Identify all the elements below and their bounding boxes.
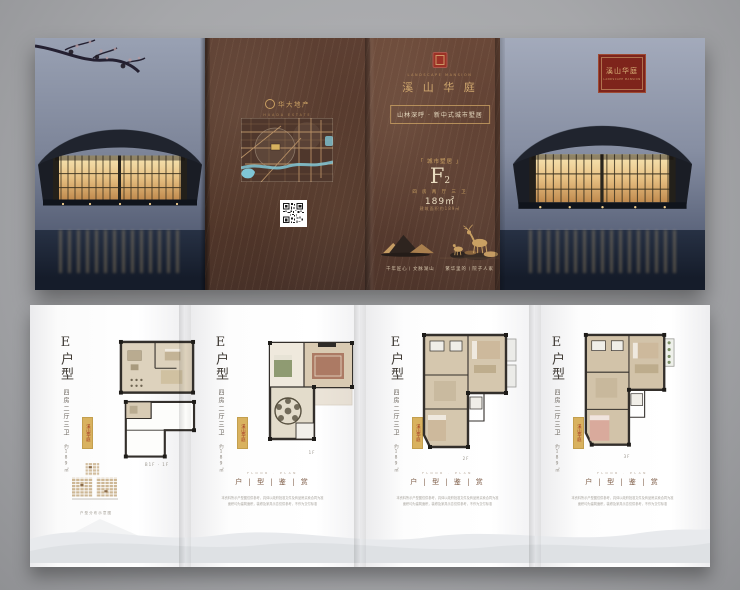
floorplan-brochure-spread: E户型 四房二厅三卫 约189㎡ 溪山华庭	[30, 305, 710, 567]
unit-type-spec: 四房二厅三卫	[61, 389, 70, 437]
unit-type-area: 约189㎡	[393, 444, 399, 473]
brand-name-en: LANDSCAPE MANSION	[380, 73, 500, 77]
unit-type-title: E户型	[547, 335, 566, 382]
unit-type-area: 约189㎡	[218, 444, 224, 473]
floor-plan: B1F · 1F	[116, 339, 198, 467]
brand-name-cn: 溪 山 华 庭	[380, 79, 500, 95]
brand-seal-icon	[433, 52, 448, 68]
qr-code	[280, 200, 307, 227]
tree-branch-silhouette	[35, 38, 205, 102]
section-label: FLOOR · PLAN 户 | 型 | 鉴 | 赏	[543, 471, 703, 487]
cover-panel: LANDSCAPE MANSION 溪 山 华 庭 山林深呼 · 新中式城市墅居…	[370, 38, 500, 290]
floor-label: 3F	[624, 454, 631, 459]
brand-slogan: 山林深呼 · 新中式城市墅居	[390, 105, 490, 124]
location-map	[241, 118, 333, 182]
floor-plan-drawing	[414, 331, 518, 453]
brochure-scene: 华大地产 HUADA ESTATE	[0, 0, 740, 590]
unit-title-block: E户型 四房二厅三卫 约189㎡	[56, 335, 75, 473]
developer-subtitle: HUADA ESTATE	[205, 113, 370, 117]
front-brochure-spread: 华大地产 HUADA ESTATE	[35, 38, 705, 290]
villa-illustration	[500, 104, 705, 235]
cover-content: LANDSCAPE MANSION 溪 山 华 庭 山林深呼 · 新中式城市墅居…	[380, 38, 500, 290]
floor-plan-drawing	[266, 335, 358, 447]
unit-title-block: E户型 四房二厅三卫 约189㎡	[547, 335, 566, 473]
developer-logo: 华大地产 HUADA ESTATE	[205, 93, 370, 117]
disclaimer: 本资料所示户型图仅供参考，具体以政府批准文件及商品房买卖合同为准 面积均为建筑面…	[547, 495, 699, 507]
floor-label: 1F	[309, 450, 316, 455]
plaque-name-en: LANDSCAPE MANSION	[603, 78, 640, 81]
unit-code-sub: 2	[444, 176, 450, 186]
villa-photo-left	[35, 38, 205, 290]
disclaimer: 本资料所示户型图仅供参考，具体以政府批准文件及商品房买卖合同为准 面积均为建筑面…	[372, 495, 524, 507]
unit-distribution-diagram	[72, 463, 118, 507]
floor-plan: 3F	[577, 331, 677, 459]
footer-slogan: 千年匠心丨文脉湖山 繁华里的丨院子人家	[380, 266, 500, 272]
unit-type-title: E户型	[386, 335, 405, 382]
section-eyebrow: FLOOR · PLAN	[368, 471, 528, 475]
section-eyebrow: FLOOR · PLAN	[193, 471, 353, 475]
light-reflection	[529, 230, 677, 274]
developer-name: 华大地产	[278, 101, 310, 109]
unit-title-block: E户型 四房二厅三卫 约189㎡	[386, 335, 405, 473]
disclaimer-line-2: 面积均为建筑面积，装修及家具示意仅供参考，不作为交付标准	[197, 501, 349, 507]
red-seal-stamp: 溪山华庭	[237, 417, 248, 449]
brand-plaque: 溪山华庭 LANDSCAPE MANSION	[598, 54, 646, 93]
unit-title-block: E户型 四房二厅三卫 约189㎡	[211, 335, 230, 473]
floor-plan: 1F	[265, 335, 359, 455]
unit-type-title: E户型	[211, 335, 230, 382]
section-eyebrow: FLOOR · PLAN	[543, 471, 703, 475]
seal-text: 溪山华庭	[85, 424, 91, 442]
floor-plan-lower	[118, 399, 196, 459]
unit-area-note: 建筑面积约189㎡	[380, 206, 500, 212]
reflecting-pool	[500, 230, 705, 290]
floor-plan: 2F	[414, 331, 518, 461]
villa-photo-right: 溪山华庭 LANDSCAPE MANSION	[500, 38, 705, 290]
section-title: 户 | 型 | 鉴 | 赏	[543, 477, 703, 487]
reflecting-pool	[35, 230, 205, 290]
unit-type-area: 约189㎡	[63, 444, 69, 473]
floor-label: B1F · 1F	[145, 462, 169, 467]
unit-type-spec: 四房二厅三卫	[552, 389, 561, 437]
unit-type-area: 约189㎡	[554, 444, 560, 473]
deer-mountain-illustration	[381, 224, 499, 262]
floor-plan-drawing	[578, 331, 676, 451]
floor-label: 2F	[463, 456, 470, 461]
unit-type-spec: 四房二厅三卫	[391, 389, 400, 437]
section-title: 户 | 型 | 鉴 | 赏	[193, 477, 353, 487]
section-label: FLOOR · PLAN 户 | 型 | 鉴 | 赏	[193, 471, 353, 487]
section-label: FLOOR · PLAN 户 | 型 | 鉴 | 赏	[368, 471, 528, 487]
diagram-caption: 户型分布示意图	[48, 511, 144, 516]
villa-illustration	[35, 104, 205, 235]
unit-code: F2	[380, 164, 500, 188]
unit-type-spec: 四房二厅三卫	[216, 389, 225, 437]
unit-type-title: E户型	[56, 335, 75, 382]
light-reflection	[59, 230, 181, 274]
red-seal-stamp: 溪山华庭	[82, 417, 93, 449]
plaque-name-cn: 溪山华庭	[606, 66, 638, 76]
unit-code-letter: F	[430, 164, 445, 188]
disclaimer-line-2: 面积均为建筑面积，装修及家具示意仅供参考，不作为交付标准	[372, 501, 524, 507]
floor-plan-upper	[118, 339, 196, 396]
section-title: 户 | 型 | 鉴 | 赏	[368, 477, 528, 487]
disclaimer: 本资料所示户型图仅供参考，具体以政府批准文件及商品房买卖合同为准 面积均为建筑面…	[197, 495, 349, 507]
seal-text: 溪山华庭	[240, 424, 246, 442]
location-panel: 华大地产 HUADA ESTATE	[205, 38, 370, 290]
disclaimer-line-2: 面积均为建筑面积，装修及家具示意仅供参考，不作为交付标准	[547, 501, 699, 507]
developer-emblem-icon	[265, 99, 275, 109]
